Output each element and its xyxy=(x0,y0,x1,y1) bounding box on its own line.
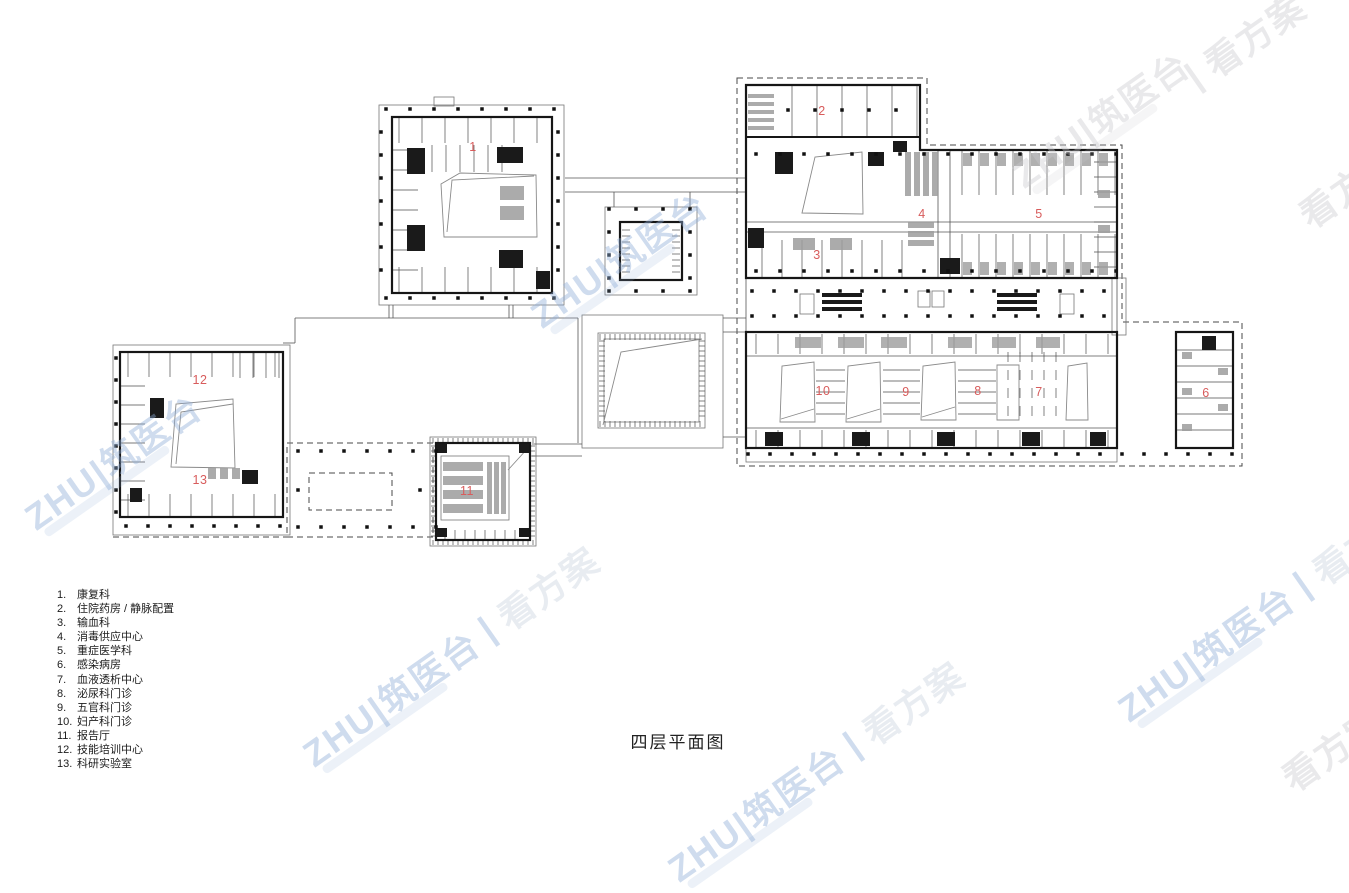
legend-item-number: 12. xyxy=(57,743,77,757)
column-dot xyxy=(790,452,794,456)
column-dot xyxy=(114,400,118,404)
column-dot xyxy=(504,296,508,300)
column-dot xyxy=(746,452,750,456)
core xyxy=(1202,336,1216,350)
column-dot xyxy=(379,130,383,134)
column-dot xyxy=(1036,314,1040,318)
column-dot xyxy=(342,525,346,529)
column-dot xyxy=(1090,152,1094,156)
fixture xyxy=(1065,262,1074,275)
fixture xyxy=(795,337,821,348)
column-dot xyxy=(922,152,926,156)
core xyxy=(997,307,1037,311)
column-dot xyxy=(379,245,383,249)
plan-marker-4: 4 xyxy=(918,207,925,221)
column-dot xyxy=(528,107,532,111)
legend-item: 4.消毒供应中心 xyxy=(57,630,174,644)
core xyxy=(852,432,870,446)
column-dot xyxy=(1042,152,1046,156)
column-dot xyxy=(970,314,974,318)
column-dot xyxy=(856,452,860,456)
fixture xyxy=(908,231,934,237)
column-dot xyxy=(384,107,388,111)
column-dot xyxy=(750,314,754,318)
legend-item: 3.输血科 xyxy=(57,616,174,630)
column-dot xyxy=(1054,452,1058,456)
column-dot xyxy=(607,230,611,234)
column-dot xyxy=(1080,314,1084,318)
column-dot xyxy=(607,253,611,257)
column-dot xyxy=(1058,289,1062,293)
legend-item-label: 五官科门诊 xyxy=(77,701,132,715)
column-dot xyxy=(504,107,508,111)
column-dot xyxy=(754,269,758,273)
column-dot xyxy=(456,296,460,300)
floor-plan-area: 12345678910111213 ZHU|筑医台ZHU|筑医台ZHU|筑医台|… xyxy=(0,0,1349,824)
fixture xyxy=(748,94,774,98)
fixture xyxy=(997,153,1006,166)
column-dot xyxy=(754,152,758,156)
column-dot xyxy=(556,245,560,249)
legend: 1.康复科2.住院药房 / 静脉配置3.输血科4.消毒供应中心5.重症医学科6.… xyxy=(57,588,174,771)
legend-item-number: 11. xyxy=(57,729,77,743)
column-dot xyxy=(1036,289,1040,293)
core xyxy=(519,528,529,537)
column-dot xyxy=(190,524,194,528)
fixture xyxy=(1014,262,1023,275)
legend-item-label: 输血科 xyxy=(77,616,110,630)
column-dot xyxy=(1042,269,1046,273)
column-dot xyxy=(114,356,118,360)
page: { "title": "四层平面图", "legend": { "items":… xyxy=(0,0,1349,824)
column-dot xyxy=(772,314,776,318)
legend-item-label: 报告厅 xyxy=(77,729,110,743)
column-dot xyxy=(926,314,930,318)
core xyxy=(940,258,960,274)
core xyxy=(407,225,425,251)
column-dot xyxy=(1014,314,1018,318)
column-dot xyxy=(874,269,878,273)
plan-title: 四层平面图 xyxy=(618,728,738,753)
column-dot xyxy=(926,289,930,293)
column-dot xyxy=(434,449,438,453)
fixture xyxy=(1031,262,1040,275)
fixture xyxy=(1082,262,1091,275)
column-dot xyxy=(688,289,692,293)
column-dot xyxy=(850,152,854,156)
legend-item: 12.技能培训中心 xyxy=(57,743,174,757)
legend-item-label: 妇产科门诊 xyxy=(77,715,132,729)
legend-item-number: 2. xyxy=(57,602,77,616)
fixture xyxy=(838,337,864,348)
fixture xyxy=(793,238,815,250)
legend-item: 11.报告厅 xyxy=(57,729,174,743)
plan-marker-12: 12 xyxy=(193,373,208,387)
column-dot xyxy=(1114,152,1118,156)
column-dot xyxy=(432,107,436,111)
courtyard xyxy=(1066,363,1088,420)
core xyxy=(822,307,862,311)
column-dot xyxy=(661,289,665,293)
column-dot xyxy=(418,488,422,492)
column-dot xyxy=(750,289,754,293)
fixture xyxy=(908,240,934,246)
core xyxy=(242,470,258,484)
fixture xyxy=(830,238,852,250)
core xyxy=(499,250,523,268)
column-dot xyxy=(296,488,300,492)
column-dot xyxy=(898,152,902,156)
column-dot xyxy=(480,296,484,300)
legend-item-label: 血液透析中心 xyxy=(77,673,143,687)
column-dot xyxy=(114,378,118,382)
core xyxy=(1090,432,1106,446)
legend-item-label: 重症医学科 xyxy=(77,644,132,658)
column-dot xyxy=(212,524,216,528)
column-dot xyxy=(922,269,926,273)
outline xyxy=(800,294,814,314)
column-dot xyxy=(552,296,556,300)
column-dot xyxy=(319,525,323,529)
fixture xyxy=(443,462,483,471)
column-dot xyxy=(114,422,118,426)
fixture xyxy=(1098,225,1110,233)
column-dot xyxy=(992,289,996,293)
column-dot xyxy=(970,269,974,273)
plan-marker-10: 10 xyxy=(816,384,831,398)
legend-item-label: 感染病房 xyxy=(77,658,121,672)
legend-item-label: 康复科 xyxy=(77,588,110,602)
core xyxy=(822,300,862,304)
column-dot xyxy=(388,525,392,529)
column-dot xyxy=(898,269,902,273)
fixture xyxy=(748,126,774,130)
column-dot xyxy=(772,289,776,293)
legend-item-label: 消毒供应中心 xyxy=(77,630,143,644)
column-dot xyxy=(1076,452,1080,456)
column-dot xyxy=(778,269,782,273)
legend-item-number: 10. xyxy=(57,715,77,729)
column-dot xyxy=(948,314,952,318)
column-dot xyxy=(867,108,871,112)
column-dot xyxy=(556,222,560,226)
column-dot xyxy=(944,452,948,456)
core xyxy=(765,432,783,446)
ramp-line xyxy=(603,339,702,425)
column-dot xyxy=(838,314,842,318)
column-dot xyxy=(168,524,172,528)
dashed-boundary xyxy=(309,473,392,510)
column-dot xyxy=(966,452,970,456)
column-dot xyxy=(1032,452,1036,456)
legend-item: 2.住院药房 / 静脉配置 xyxy=(57,602,174,616)
column-dot xyxy=(1098,452,1102,456)
legend-item: 5.重症医学科 xyxy=(57,644,174,658)
fixture xyxy=(220,468,228,479)
column-dot xyxy=(860,314,864,318)
column-dot xyxy=(882,314,886,318)
column-dot xyxy=(434,525,438,529)
column-dot xyxy=(992,314,996,318)
column-dot xyxy=(994,269,998,273)
fixture xyxy=(232,468,240,479)
outline xyxy=(918,291,930,307)
column-dot xyxy=(988,452,992,456)
legend-item-number: 8. xyxy=(57,687,77,701)
column-dot xyxy=(379,153,383,157)
fixture xyxy=(923,152,929,196)
column-dot xyxy=(970,289,974,293)
plan-marker-9: 9 xyxy=(902,385,909,399)
column-dot xyxy=(794,314,798,318)
core xyxy=(150,398,164,418)
column-dot xyxy=(874,152,878,156)
column-dot xyxy=(114,510,118,514)
fixture xyxy=(1098,190,1110,198)
fixture xyxy=(443,504,483,513)
fixture xyxy=(1036,337,1060,348)
legend-item-label: 住院药房 / 静脉配置 xyxy=(77,602,174,616)
legend-item-number: 5. xyxy=(57,644,77,658)
column-dot xyxy=(528,296,532,300)
column-dot xyxy=(826,269,830,273)
column-dot xyxy=(838,289,842,293)
column-dot xyxy=(408,296,412,300)
column-dot xyxy=(816,289,820,293)
column-dot xyxy=(813,108,817,112)
column-dot xyxy=(688,207,692,211)
column-dot xyxy=(114,488,118,492)
column-dot xyxy=(234,524,238,528)
column-dot xyxy=(556,153,560,157)
fixture xyxy=(208,468,216,479)
column-dot xyxy=(1208,452,1212,456)
column-dot xyxy=(552,107,556,111)
core xyxy=(407,148,425,174)
column-dot xyxy=(1102,289,1106,293)
legend-item-number: 3. xyxy=(57,616,77,630)
floor-plan-drawing xyxy=(0,0,1349,824)
legend-item-number: 6. xyxy=(57,658,77,672)
column-dot xyxy=(607,207,611,211)
legend-item: 9.五官科门诊 xyxy=(57,701,174,715)
column-dot xyxy=(342,449,346,453)
column-dot xyxy=(480,107,484,111)
courtyard xyxy=(802,152,863,214)
column-dot xyxy=(319,449,323,453)
column-dot xyxy=(256,524,260,528)
plan-marker-1: 1 xyxy=(469,140,476,154)
fixture xyxy=(748,102,774,106)
fixture xyxy=(992,337,1016,348)
column-dot xyxy=(922,452,926,456)
core xyxy=(775,152,793,174)
column-dot xyxy=(296,525,300,529)
core xyxy=(937,432,955,446)
column-dot xyxy=(634,289,638,293)
column-dot xyxy=(1114,269,1118,273)
column-dot xyxy=(1090,269,1094,273)
legend-item-number: 1. xyxy=(57,588,77,602)
column-dot xyxy=(860,289,864,293)
core xyxy=(497,147,523,163)
column-dot xyxy=(1066,152,1070,156)
column-dot xyxy=(607,276,611,280)
legend-item: 8.泌尿科门诊 xyxy=(57,687,174,701)
column-dot xyxy=(946,152,950,156)
outline xyxy=(605,207,697,295)
fixture xyxy=(932,152,938,196)
fixture xyxy=(1031,153,1040,166)
plan-marker-8: 8 xyxy=(974,384,981,398)
column-dot xyxy=(802,152,806,156)
fixture xyxy=(905,152,911,196)
column-dot xyxy=(904,289,908,293)
fixture xyxy=(500,206,524,220)
column-dot xyxy=(408,107,412,111)
column-dot xyxy=(904,314,908,318)
column-dot xyxy=(379,199,383,203)
fixture xyxy=(1218,404,1228,411)
plan-marker-6: 6 xyxy=(1202,386,1209,400)
column-dot xyxy=(365,525,369,529)
fixture xyxy=(1099,153,1108,166)
column-dot xyxy=(970,152,974,156)
courtyard xyxy=(921,362,956,420)
column-dot xyxy=(786,108,790,112)
plan-marker-3: 3 xyxy=(813,248,820,262)
outline xyxy=(1060,294,1074,314)
wall xyxy=(620,222,682,280)
column-dot xyxy=(379,176,383,180)
fixture xyxy=(914,152,920,196)
fixture xyxy=(997,262,1006,275)
column-dot xyxy=(384,296,388,300)
column-dot xyxy=(826,152,830,156)
fixture xyxy=(501,462,506,514)
fixture xyxy=(748,118,774,122)
column-dot xyxy=(816,314,820,318)
core xyxy=(519,444,529,453)
column-dot xyxy=(114,466,118,470)
fixture xyxy=(1082,153,1091,166)
fixture xyxy=(1048,262,1057,275)
column-dot xyxy=(124,524,128,528)
plan-marker-5: 5 xyxy=(1035,207,1042,221)
fixture xyxy=(908,222,934,228)
column-dot xyxy=(456,107,460,111)
fixture xyxy=(963,262,972,275)
column-dot xyxy=(802,269,806,273)
plan-marker-7: 7 xyxy=(1035,385,1042,399)
fixture xyxy=(1218,368,1228,375)
column-dot xyxy=(688,253,692,257)
courtyard xyxy=(171,399,235,468)
column-dot xyxy=(365,449,369,453)
column-dot xyxy=(794,289,798,293)
legend-item-number: 4. xyxy=(57,630,77,644)
core xyxy=(822,293,862,297)
fixture xyxy=(881,337,907,348)
column-dot xyxy=(296,449,300,453)
column-dot xyxy=(946,269,950,273)
column-dot xyxy=(1164,452,1168,456)
fixture xyxy=(487,462,492,514)
column-dot xyxy=(834,452,838,456)
plan-marker-11: 11 xyxy=(460,484,474,498)
fixture xyxy=(494,462,499,514)
legend-item-number: 7. xyxy=(57,673,77,687)
core xyxy=(893,141,907,152)
courtyard xyxy=(780,362,815,422)
fixture xyxy=(1182,352,1192,359)
column-dot xyxy=(1066,269,1070,273)
column-dot xyxy=(634,207,638,211)
legend-item-number: 9. xyxy=(57,701,77,715)
outline xyxy=(932,291,944,307)
courtyard xyxy=(846,362,881,422)
legend-item: 10.妇产科门诊 xyxy=(57,715,174,729)
column-dot xyxy=(1010,452,1014,456)
column-dot xyxy=(146,524,150,528)
legend-item: 13.科研实验室 xyxy=(57,757,174,771)
column-dot xyxy=(1186,452,1190,456)
fixture xyxy=(980,153,989,166)
column-dot xyxy=(878,452,882,456)
legend-item: 1.康复科 xyxy=(57,588,174,602)
column-dot xyxy=(882,289,886,293)
column-dot xyxy=(778,152,782,156)
column-dot xyxy=(948,289,952,293)
column-dot xyxy=(1102,314,1106,318)
core xyxy=(130,488,142,502)
column-dot xyxy=(900,452,904,456)
fixture xyxy=(1048,153,1057,166)
outline xyxy=(604,339,699,422)
core xyxy=(437,444,447,453)
column-dot xyxy=(1014,289,1018,293)
legend-item-label: 科研实验室 xyxy=(77,757,132,771)
core xyxy=(536,271,550,289)
column-dot xyxy=(556,176,560,180)
fixture xyxy=(980,262,989,275)
column-dot xyxy=(812,452,816,456)
column-dot xyxy=(388,449,392,453)
core xyxy=(437,528,447,537)
column-dot xyxy=(1018,269,1022,273)
core xyxy=(997,293,1037,297)
fixture xyxy=(748,110,774,114)
column-dot xyxy=(411,525,415,529)
legend-item-number: 13. xyxy=(57,757,77,771)
column-dot xyxy=(688,276,692,280)
column-dot xyxy=(278,524,282,528)
column-dot xyxy=(1080,289,1084,293)
legend-item: 6.感染病房 xyxy=(57,658,174,672)
outline xyxy=(746,448,1117,462)
courtyard xyxy=(441,173,537,237)
column-dot xyxy=(1230,452,1234,456)
column-dot xyxy=(1018,152,1022,156)
column-dot xyxy=(850,269,854,273)
column-dot xyxy=(688,230,692,234)
column-dot xyxy=(379,222,383,226)
fixture xyxy=(500,186,524,200)
legend-item-label: 泌尿科门诊 xyxy=(77,687,132,701)
column-dot xyxy=(894,108,898,112)
column-dot xyxy=(607,289,611,293)
fixture xyxy=(1099,262,1108,275)
